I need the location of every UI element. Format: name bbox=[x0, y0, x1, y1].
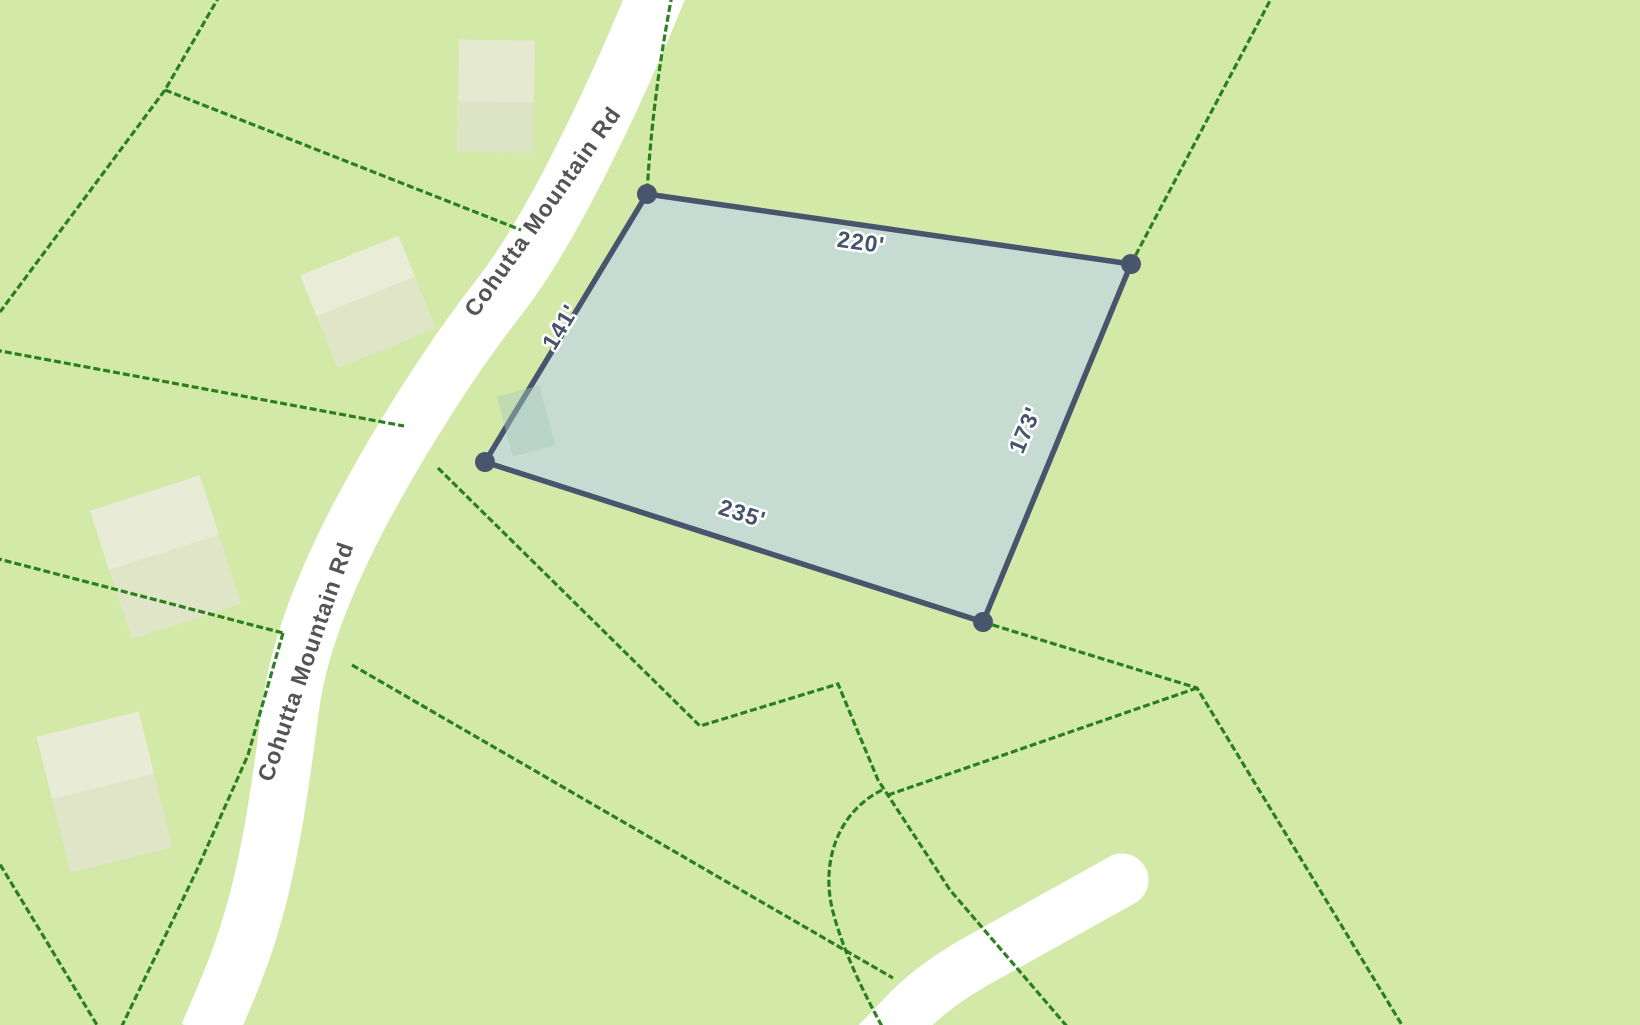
map-viewport[interactable]: Cohutta Mountain Rd Cohutta Mountain Rd … bbox=[0, 0, 1640, 1025]
parcel-vertex[interactable] bbox=[1121, 254, 1141, 274]
parcel-vertex[interactable] bbox=[637, 184, 657, 204]
parcel-vertex[interactable] bbox=[475, 452, 495, 472]
building-footprint bbox=[457, 39, 535, 152]
parcel-vertex[interactable] bbox=[973, 612, 993, 632]
map-canvas[interactable]: Cohutta Mountain Rd Cohutta Mountain Rd … bbox=[0, 0, 1640, 1025]
